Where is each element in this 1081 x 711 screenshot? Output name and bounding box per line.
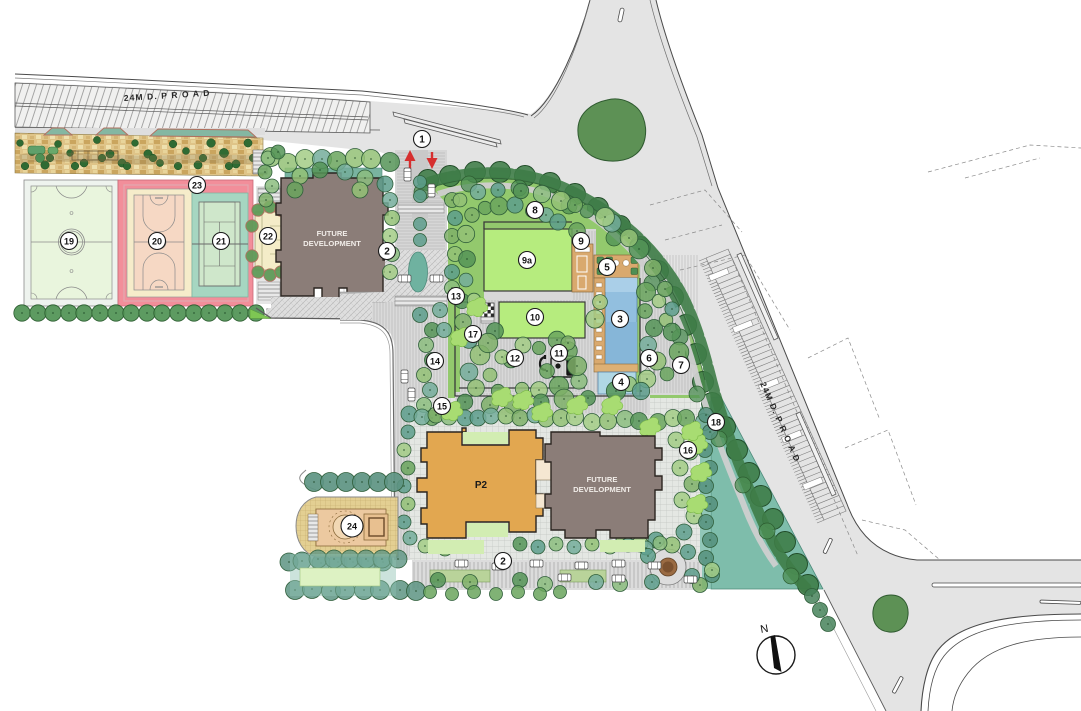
svg-text:P2: P2 <box>475 480 488 491</box>
svg-text:18: 18 <box>711 418 721 428</box>
svg-text:2: 2 <box>384 247 390 258</box>
svg-text:7: 7 <box>678 361 684 372</box>
svg-text:13: 13 <box>451 292 461 302</box>
svg-text:22: 22 <box>263 232 273 242</box>
svg-text:4: 4 <box>618 378 624 389</box>
svg-text:23: 23 <box>192 181 202 191</box>
svg-text:12: 12 <box>510 354 520 364</box>
svg-text:15: 15 <box>437 402 447 412</box>
svg-text:5: 5 <box>604 263 610 274</box>
svg-text:1: 1 <box>419 135 425 146</box>
svg-text:24: 24 <box>347 522 357 532</box>
svg-text:9: 9 <box>578 237 584 248</box>
svg-text:19: 19 <box>64 237 74 247</box>
svg-text:2: 2 <box>500 557 506 568</box>
svg-text:8: 8 <box>532 206 538 217</box>
svg-text:16: 16 <box>683 446 693 456</box>
svg-text:10: 10 <box>530 313 540 323</box>
svg-text:21: 21 <box>216 237 226 247</box>
svg-text:FUTURE: FUTURE <box>587 475 618 484</box>
svg-text:3: 3 <box>617 315 623 326</box>
svg-text:DEVELOPMENT: DEVELOPMENT <box>303 239 361 248</box>
svg-text:DEVELOPMENT: DEVELOPMENT <box>573 485 631 494</box>
svg-text:6: 6 <box>646 354 652 365</box>
svg-text:14: 14 <box>430 357 440 367</box>
svg-text:20: 20 <box>152 237 162 247</box>
svg-text:11: 11 <box>554 349 564 359</box>
svg-text:FUTURE: FUTURE <box>317 229 348 238</box>
svg-text:17: 17 <box>468 330 478 340</box>
svg-text:9a: 9a <box>522 256 533 266</box>
